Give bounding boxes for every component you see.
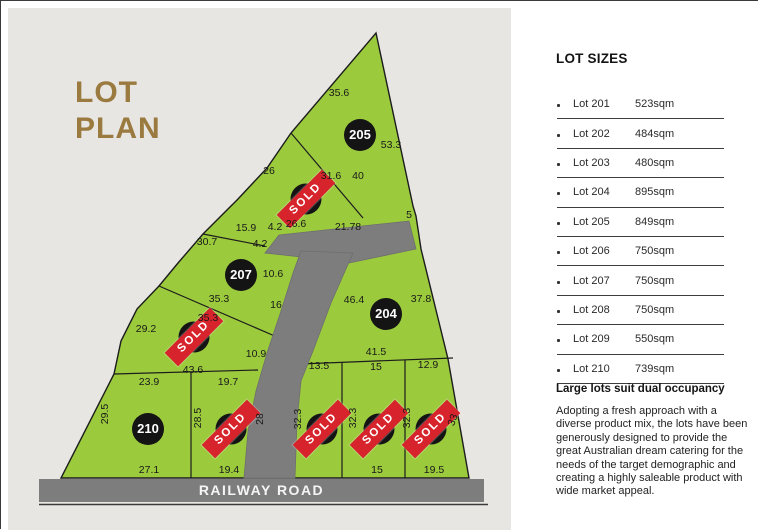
lot-size: 739sqm: [635, 363, 674, 375]
lot-size-row: Lot 202484sqm: [557, 119, 724, 148]
lot-size: 550sqm: [635, 333, 674, 345]
lot-name: Lot 201: [573, 98, 635, 110]
lot-name: Lot 204: [573, 186, 635, 198]
lot-name: Lot 205: [573, 216, 635, 228]
bullet-icon: [557, 216, 573, 228]
lot-size-row: Lot 201523sqm: [557, 90, 724, 119]
dual-occupancy-subheading: Large lots suit dual occupancy: [556, 383, 725, 395]
lot-name: Lot 209: [573, 333, 635, 345]
lot-name: Lot 210: [573, 363, 635, 375]
lot-size-row: Lot 207750sqm: [557, 266, 724, 295]
lot-size: 750sqm: [635, 304, 674, 316]
lot-plan-flyer-page: 205SOLD207SOLD204210SOLDSOLDSOLDSOLD35.6…: [0, 0, 758, 529]
lot-size-row: Lot 209550sqm: [557, 325, 724, 354]
lot-size: 480sqm: [635, 157, 674, 169]
bullet-icon: [557, 98, 573, 110]
lot-size-row: Lot 204895sqm: [557, 178, 724, 207]
lot-size-row: Lot 208750sqm: [557, 296, 724, 325]
bullet-icon: [557, 157, 573, 169]
bullet-icon: [557, 333, 573, 345]
lot-size-row: Lot 206750sqm: [557, 237, 724, 266]
bullet-icon: [557, 186, 573, 198]
lot-sizes-list: Lot 201523sqmLot 202484sqmLot 203480sqmL…: [557, 90, 724, 384]
bullet-icon: [557, 304, 573, 316]
marketing-paragraph: Adopting a fresh approach with a diverse…: [556, 405, 753, 499]
lot-sizes-heading: LOT SIZES: [556, 51, 628, 66]
lot-size: 849sqm: [635, 216, 674, 228]
lot-size: 750sqm: [635, 275, 674, 287]
lot-size-row: Lot 205849sqm: [557, 208, 724, 237]
lot-name: Lot 208: [573, 304, 635, 316]
page-title-line1: LOT: [75, 75, 161, 111]
bullet-icon: [557, 128, 573, 140]
lot-size-row: Lot 210739sqm: [557, 355, 724, 384]
lot-name: Lot 206: [573, 245, 635, 257]
railway-road-label: RAILWAY ROAD: [39, 479, 484, 502]
bullet-icon: [557, 363, 573, 375]
bullet-icon: [557, 275, 573, 287]
lot-size: 523sqm: [635, 98, 674, 110]
lot-size-row: Lot 203480sqm: [557, 149, 724, 178]
lot-name: Lot 202: [573, 128, 635, 140]
page-title-line2: PLAN: [75, 111, 161, 147]
lot-name: Lot 207: [573, 275, 635, 287]
lot-size: 895sqm: [635, 186, 674, 198]
lot-size: 484sqm: [635, 128, 674, 140]
lot-size: 750sqm: [635, 245, 674, 257]
page-title: LOT PLAN: [75, 75, 161, 147]
lot-name: Lot 203: [573, 157, 635, 169]
bullet-icon: [557, 245, 573, 257]
